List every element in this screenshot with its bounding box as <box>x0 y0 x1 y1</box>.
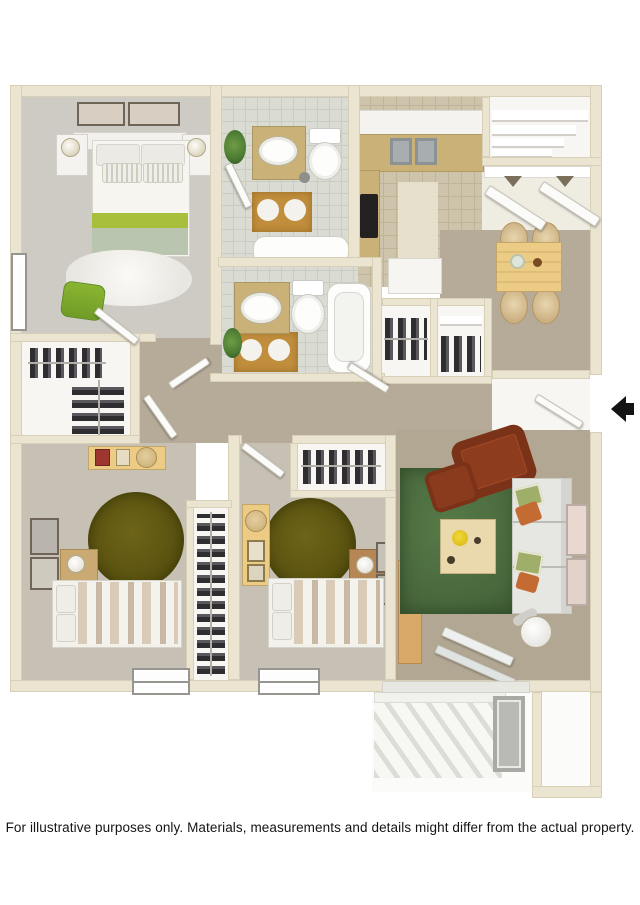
wall-patio-bottom <box>532 786 602 798</box>
master-lamp-left <box>61 138 80 157</box>
laundry-hinge-notch-2 <box>556 176 574 187</box>
bedroom3-lamp <box>356 556 374 574</box>
wall-shoecloset-left <box>186 500 194 680</box>
patio-railing <box>374 694 502 778</box>
wall-bedroom3-closet-bottom <box>290 490 396 498</box>
kitchen-sink-basin-2 <box>415 138 437 165</box>
wall-hallcloset-bottom <box>382 376 492 384</box>
pantry-shelf-2 <box>492 125 576 136</box>
bath1-mat-dot-1 <box>257 199 279 221</box>
wall-shoecloset-top <box>186 500 232 508</box>
bedroom2-console-frame <box>116 449 130 466</box>
bedroom2-art-1 <box>30 518 59 555</box>
master-accent-pillow-2 <box>143 163 183 183</box>
bedroom2-window-on-wall <box>132 681 190 695</box>
laundry-hinge-notch-1 <box>504 176 522 187</box>
patio-railing-top-rail <box>374 692 506 703</box>
bath2-mat-dot-2 <box>268 339 290 361</box>
bath2-toilet-bowl <box>291 294 325 334</box>
bath1-mat-dot-2 <box>284 199 306 221</box>
bath1-sink <box>258 136 298 166</box>
wall-bedroom3-left <box>228 435 240 680</box>
bedroom3-dresser-frame-2 <box>247 564 265 582</box>
wall-mastercloset-right <box>130 333 140 443</box>
wall-master-bath1 <box>210 85 222 345</box>
kitchen-floor-runner <box>398 182 438 264</box>
dining-table-bowl <box>533 258 542 267</box>
bedroom3-dresser-basket <box>245 510 267 532</box>
bath2-plant-icon <box>223 328 242 358</box>
wall-pantry-bottom <box>482 157 602 166</box>
bedroom3-closet-clothes <box>303 450 379 484</box>
bedroom3-pillow-2 <box>272 612 292 640</box>
living-wall-art-2 <box>566 558 588 606</box>
pantry-shelf-3 <box>492 138 564 148</box>
bath1-toilet-bowl <box>308 142 342 180</box>
floorplan-image: For illustrative purposes only. Material… <box>0 0 640 905</box>
bedroom3-round-rug <box>264 498 356 590</box>
pantry-shelf-1 <box>492 110 588 122</box>
bedroom3-closet-rod <box>301 465 381 467</box>
wall-bath1-bath2 <box>218 257 380 267</box>
bedroom2-console-basket <box>136 447 157 468</box>
living-floor-lamp <box>520 616 552 648</box>
hall-closet2-shelf <box>440 316 482 326</box>
dining-table-flowers <box>512 256 523 267</box>
master-bed-lime-stripe <box>92 213 188 228</box>
kitchen-range <box>360 194 378 238</box>
entry-arrow-tail <box>626 403 634 415</box>
master-lamp-right <box>187 138 206 157</box>
wall-hallcloset-mid <box>430 298 438 384</box>
wall-outer-left <box>10 85 22 692</box>
bedroom2-round-rug <box>88 492 184 588</box>
hall-closet2-clothes <box>441 336 481 372</box>
disclaimer-text: For illustrative purposes only. Material… <box>0 820 640 835</box>
wall-entry-top <box>492 370 590 379</box>
bedroom2-bed-striped-cover <box>78 582 178 644</box>
master-wall-art-2 <box>128 102 180 126</box>
dining-chair-4 <box>532 288 560 324</box>
bedroom3-dresser-frame-1 <box>247 540 265 562</box>
entry-arrow-icon <box>611 396 634 422</box>
wall-bedroom3-top <box>292 435 396 444</box>
living-pillow-leaf-2 <box>513 550 543 576</box>
wall-hallcloset-right <box>484 298 492 384</box>
bedroom3-pillow-1 <box>272 583 292 611</box>
wall-bedroom2-top <box>10 435 140 444</box>
kitchen-island <box>388 258 442 294</box>
bedroom2-lamp <box>67 555 85 573</box>
bedroom3-window-on-wall <box>258 681 320 695</box>
living-coffee-table-bowl <box>452 530 468 546</box>
bath2-bathtub-basin <box>334 292 364 362</box>
living-wall-art-1 <box>566 504 588 556</box>
wall-pantry-left <box>482 97 490 157</box>
master-accent-pillow-1 <box>102 163 142 183</box>
master-wall-art-1 <box>77 102 125 126</box>
bedroom2-console-books <box>95 449 110 466</box>
entry-arrow-head <box>611 396 626 422</box>
wall-outer-right-upper <box>590 85 602 375</box>
wall-bedroom3-right <box>385 435 396 680</box>
living-coffee-table <box>440 519 496 574</box>
bedroom2-pillow-1 <box>56 585 76 613</box>
bedroom2-pillow-2 <box>56 614 76 642</box>
bath2-mat-dot-1 <box>240 339 262 361</box>
master-closet-rod-top <box>28 362 106 364</box>
patio-storage-door <box>493 696 525 772</box>
kitchen-sink-basin-1 <box>390 138 412 165</box>
bath1-trash-can <box>299 172 310 183</box>
living-coffee-table-item-1 <box>474 537 481 544</box>
wall-bath2-right <box>372 257 382 382</box>
wall-bath1-kitchen <box>348 85 360 265</box>
hall-closet1-rod <box>384 338 428 340</box>
dining-table <box>496 242 562 292</box>
bath2-sink <box>240 292 282 324</box>
master-window <box>11 253 27 331</box>
wall-patio-right <box>590 692 602 798</box>
wall-outer-top <box>10 85 602 97</box>
kitchen-upper-cabinets <box>358 110 484 136</box>
bath1-plant-icon <box>224 130 246 164</box>
master-closet-rod-side <box>98 380 100 436</box>
wall-outer-right-lower <box>590 432 602 692</box>
shoe-closet-rod <box>210 512 212 676</box>
living-coffee-table-item-2 <box>447 556 455 564</box>
bedroom3-bed-striped-cover <box>294 580 380 644</box>
laundry-header <box>484 166 592 178</box>
wall-patio-storage-left <box>532 692 542 792</box>
living-slider-track <box>382 681 530 693</box>
dining-chair-3 <box>500 288 528 324</box>
wall-bedroom3-closet-left <box>290 443 298 495</box>
